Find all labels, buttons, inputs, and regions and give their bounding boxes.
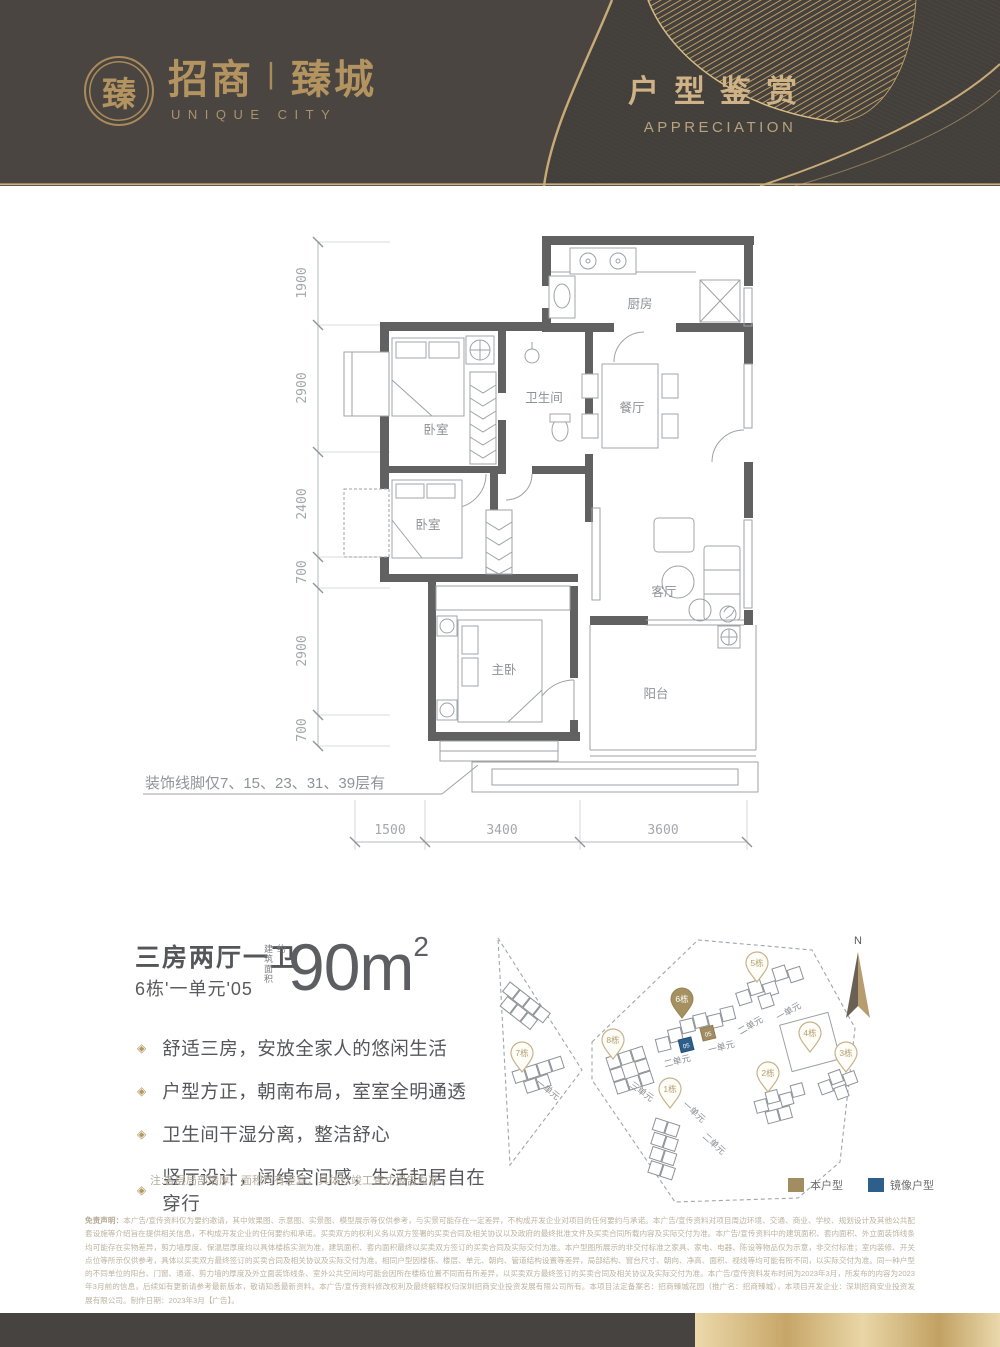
svg-text:1栋: 1栋 [663,1084,677,1094]
room-label-master: 主卧 [491,663,516,677]
disclaimer-text: 本广告/宣传资料仅为要约邀请，其中效果图、示意图、实景图、模型展示等仅供参考，与… [85,1216,915,1305]
diamond-bullet-icon: ◈ [137,1183,146,1197]
room-label-kitchen: 厨房 [627,296,652,311]
unit-label: 一单元 [681,1098,708,1124]
legal-disclaimer: 免责声明：本广告/宣传资料仅为要约邀请，其中效果图、示意图、实景图、模型展示等仅… [85,1214,915,1307]
site-plan: 一单元 三单元 05 05 二单元 一单元 二单元 一单元 [480,930,1000,1220]
dim-left-6: 700 [295,718,310,741]
footer-dark-band [0,1313,695,1347]
feature-list: ◈ 舒适三房，安放全家人的悠闲生活 ◈ 户型方正，朝南布局，室室全明通透 ◈ 卫… [137,1035,497,1233]
seal-character: 臻 [102,67,136,116]
brand-divider: 丨 [254,61,291,94]
diamond-bullet-icon: ◈ [137,1127,146,1141]
diamond-bullet-icon: ◈ [137,1041,146,1055]
building-1-cluster [639,1118,688,1180]
header-banner: 臻 招商丨臻城 UNIQUE CITY 户型鉴赏 APPRECIATION [0,0,1000,186]
room-label-living: 客厅 [651,584,676,599]
molding-note: 装饰线脚仅7、15、23、31、39层有 [143,762,758,794]
dim-bottom-3: 3600 [647,823,678,838]
dim-left-1: 1900 [295,267,310,298]
info-note: 注:各层局部墙厚、面积均有差异，具体以竣工查丈报告为准 [150,1172,439,1188]
pin-building-3: 3栋 [835,1042,857,1072]
feature-item: ◈ 舒适三房，安放全家人的悠闲生活 [137,1035,497,1061]
svg-text:5栋: 5栋 [750,958,764,968]
site-legend: 本户型 镜像户型 [788,1178,934,1192]
svg-text:8栋: 8栋 [606,1035,620,1045]
room-label-bedroom-mid: 卧室 [415,517,440,532]
room-label-bedroom-top: 卧室 [423,422,448,437]
feature-item: ◈ 卫生间干湿分离，整洁舒心 [137,1121,497,1147]
brand-logo: 臻 招商丨臻城 UNIQUE CITY [84,56,377,126]
dim-bottom-1: 1500 [374,823,405,838]
svg-text:7栋: 7栋 [515,1048,529,1058]
seal-icon: 臻 [84,56,154,126]
unit-label: 一单元 [707,1038,736,1055]
room-label-dining: 餐厅 [619,400,644,415]
area-value: 90m2 [288,934,428,999]
unit-label: 二单元 [701,1130,728,1156]
brand-name: 招商丨臻城 [168,60,377,100]
svg-text:6栋: 6栋 [675,994,689,1004]
unit-label: 6栋'一单元'05 [135,975,253,1001]
disclaimer-title: 免责声明： [85,1216,123,1225]
floor-plan: 1900 2900 2400 700 2900 700 1500 3400 36… [140,222,860,872]
section-heading: 户型鉴赏 APPRECIATION [628,66,812,136]
area-superscript: 2 [413,931,428,962]
compass-north-icon: N [846,935,870,1018]
unit-label: 二单元 [663,1052,692,1069]
brochure-page: 臻 招商丨臻城 UNIQUE CITY 户型鉴赏 APPRECIATION [0,0,1000,1347]
pin-building-1: 1栋 [659,1078,681,1108]
svg-text:2栋: 2栋 [761,1068,775,1078]
dimension-chain-bottom: 1500 3400 3600 [350,800,752,850]
site-boundary-main [592,940,855,1202]
legend-self-swatch [788,1178,804,1192]
floorplan-note: 装饰线脚仅7、15、23、31、39层有 [145,775,385,792]
legend-mirror-label: 镜像户型 [890,1178,934,1192]
area-figure: 建筑面积约 90m2 [262,934,428,999]
unit-label: 二单元 [736,1013,765,1036]
dimension-chain-left: 1900 2900 2400 700 2900 700 [295,237,390,751]
pin-building-5: 5栋 [746,952,768,982]
section-subtitle: APPRECIATION [628,119,812,136]
svg-text:N: N [854,935,862,947]
feature-item: ◈ 户型方正，朝南布局，室室全明通透 [137,1078,497,1104]
dim-left-2: 2900 [295,372,310,403]
building-3-cluster [816,1065,861,1104]
pin-building-4: 4栋 [799,1022,821,1052]
diamond-bullet-icon: ◈ [137,1084,146,1098]
legend-self-label: 本户型 [810,1178,843,1192]
section-title: 户型鉴赏 [628,66,812,111]
pin-building-2: 2栋 [757,1062,779,1092]
brand-subtitle: UNIQUE CITY [168,107,377,122]
footer-gold-band [695,1313,1000,1347]
svg-text:4栋: 4栋 [803,1028,817,1038]
building-2-cluster [753,1083,810,1126]
unit-label: 一单元 [774,999,803,1022]
pin-building-6-current: 6栋 [671,988,693,1018]
room-label-balcony: 阳台 [643,686,668,701]
area-prefix: 建筑面积约 [262,944,288,984]
furniture [392,248,740,722]
room-label-bathroom: 卫生间 [525,391,563,405]
dim-left-4: 700 [295,560,310,583]
dim-left-3: 2400 [295,488,310,519]
legend-mirror-swatch [868,1178,884,1192]
dim-left-5: 2900 [295,635,310,666]
svg-text:3栋: 3栋 [839,1048,853,1058]
dim-bottom-2: 3400 [486,823,517,838]
